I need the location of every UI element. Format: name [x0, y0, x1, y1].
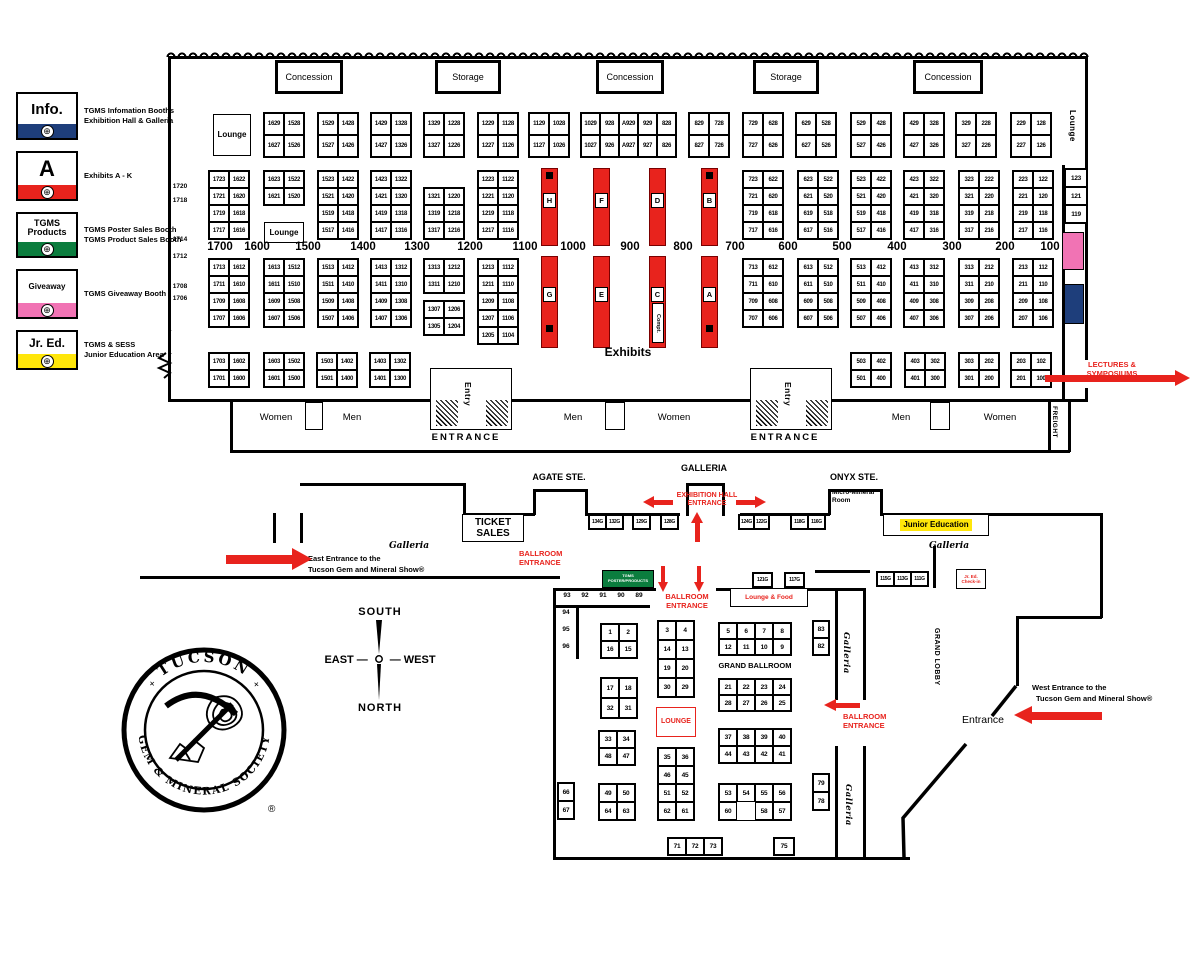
wall-segment [463, 483, 466, 515]
booth-cell: 719 [743, 205, 763, 222]
legend-chip-exhibits: A⊕ [16, 151, 78, 201]
booth-cell: 610 [763, 276, 783, 293]
booth-cell: 613 [798, 259, 818, 276]
logo-ring-bottom-text: GEM & MINERAL SOCIETY [135, 734, 272, 798]
booth-cell: 1212 [444, 259, 464, 276]
booth-cell: 403 [905, 353, 925, 370]
booth-cell: 1126 [498, 135, 518, 157]
booth-cell: 1403 [370, 353, 390, 370]
booth-cell: 1623 [264, 171, 284, 188]
booth-cell: 1311 [424, 276, 444, 293]
map-label: Galleria [929, 541, 969, 552]
exhibit-door-marker [706, 172, 713, 179]
booth-cell: 37 [719, 729, 737, 746]
booth-cell: 1308 [391, 293, 411, 310]
junior-education: Junior Education [883, 514, 989, 536]
exhibit-block-h: H [541, 168, 558, 246]
booth-cell: 617 [798, 222, 818, 239]
booth-cell: 71 [668, 838, 686, 855]
compass-needle-icon [371, 618, 387, 702]
aisle-label: 100 [1040, 241, 1059, 255]
booth-block: 1329122813271226 [423, 112, 465, 158]
booth-cell: 42 [755, 746, 773, 763]
booth-cell: 128G [661, 515, 678, 529]
booth-block: 323222321220319218317216 [958, 170, 1000, 240]
aisle-label: 1500 [295, 241, 321, 255]
booth-cell: 1519 [318, 205, 338, 222]
booth-cell: 1621 [264, 188, 284, 205]
booth-cell: 420 [871, 188, 891, 205]
exhibit-block-d: D [649, 168, 666, 246]
aisle-label: 300 [942, 241, 961, 255]
booth-cell: 1319 [424, 205, 444, 222]
booth-cell: 1027 [581, 135, 600, 157]
booth-cell: 126 [1031, 135, 1051, 157]
booth-block: 329228327226 [955, 112, 997, 158]
booth-cell: 402 [871, 353, 891, 370]
legend-chip-label: Info. [18, 94, 76, 124]
map-label-vertical: FREIGHT [1051, 406, 1058, 438]
booth-cell: 1420 [338, 188, 358, 205]
booth-cell: 1610 [229, 276, 249, 293]
booth-cell: 723 [743, 171, 763, 188]
lobby-diagonal-wall [992, 686, 1016, 716]
map-label: ENTRANCE [432, 432, 501, 443]
wall-segment [828, 489, 831, 515]
booth-cell: 1129 [529, 113, 549, 135]
booth-block: 33344847 [598, 730, 636, 766]
booth-cell: 508 [818, 293, 838, 310]
booth-cell: 82 [813, 638, 829, 655]
jr-ed-checkin-label: Jr. Ed. Check-in [961, 574, 980, 584]
booth-block: 1503140215011400 [316, 352, 358, 388]
tgms-products-booth: TGMS POSTER/PRODUCTS [602, 570, 654, 588]
booth-block: 1229112812271126 [477, 112, 519, 158]
booth-block: 713612711610709608707606 [742, 258, 784, 328]
booth-cell: 1313 [424, 259, 444, 276]
booth-block: 1529142815271426 [317, 112, 359, 158]
booth-cell: 409 [904, 293, 924, 310]
map-label: Women [658, 412, 691, 423]
booth-cell: 1407 [371, 310, 391, 327]
booth-block: 503402501400 [850, 352, 892, 388]
booth-cell: 1417 [371, 222, 391, 239]
booth-block: 303202301200 [958, 352, 1000, 388]
logo-cross-icon: + [250, 679, 262, 691]
booth-cell: 1221 [478, 188, 498, 205]
booth-cell: 63 [617, 802, 635, 820]
booth-block: 128G [660, 514, 679, 530]
booth-cell: 611 [798, 276, 818, 293]
restroom-stall [930, 402, 950, 430]
map-label: ONYX STE. [830, 472, 878, 483]
wall-segment [686, 483, 724, 486]
booth-cell: 322 [924, 171, 944, 188]
booth-cell: 302 [925, 353, 945, 370]
booth-cell: 626 [763, 135, 783, 157]
map-label: AGATE STE. [532, 472, 585, 483]
booth-cell: 1423 [371, 171, 391, 188]
booth-cell: 1510 [284, 276, 304, 293]
map-label: Women [984, 412, 1017, 423]
booth-cell: 1711 [209, 276, 229, 293]
booth-cell: 1526 [284, 135, 304, 157]
booth-cell: 327 [956, 135, 976, 157]
booth-cell: 116G [808, 515, 825, 529]
booth-block: 429328427326 [903, 112, 945, 158]
booth-cell: 709 [743, 293, 763, 310]
booth-cell: 108 [1033, 293, 1053, 310]
booth-cell: 203 [1011, 353, 1031, 370]
booth-block: 1403130214011300 [369, 352, 411, 388]
direction-arrow-right [736, 496, 766, 508]
booth-cell: 609 [798, 293, 818, 310]
booth-block: 7978 [812, 773, 830, 811]
booth-cell: 124G [739, 515, 754, 529]
entry-stairs [486, 400, 508, 426]
booth-cell: 1205 [478, 327, 498, 344]
exhibit-letter: A [703, 287, 716, 302]
booth-cell: 8 [773, 623, 791, 639]
booth-cell: 210 [979, 276, 999, 293]
booth-cell: 15 [619, 641, 637, 658]
legend-color-bar: ⊕ [18, 354, 76, 368]
booth-cell: 1322 [391, 171, 411, 188]
exhibit-block-b: B [701, 168, 718, 246]
booth-cell: 618 [763, 205, 783, 222]
booth-cell: 612 [763, 259, 783, 276]
booth-cell: 523 [851, 171, 871, 188]
legend-item-jr-ed: Jr. Ed.⊕TGMS & SESS Junior Education Are… [16, 330, 196, 370]
booth-block: 1313121213111210 [423, 258, 465, 294]
booth-cell: 1329 [424, 113, 444, 135]
booth-cell: 423 [904, 171, 924, 188]
compass-north-label: NORTH [318, 702, 442, 714]
map-label: Exhibits [605, 345, 652, 359]
booth-cell: 1511 [318, 276, 338, 293]
aisle-label: 800 [673, 241, 692, 255]
booth-cell: 209 [1013, 293, 1033, 310]
lobby-diagonal-wall [903, 744, 966, 857]
booth-cell: 316 [924, 222, 944, 239]
booth-cell: 1520 [284, 188, 304, 205]
booth-block: 17183231 [600, 677, 638, 719]
booth-cell: 318 [924, 205, 944, 222]
booth-cell: 1127 [529, 135, 549, 157]
booth-cell: 134G [589, 515, 606, 529]
booth-cell: 212 [979, 259, 999, 276]
lounge-food-label: Lounge & Food [745, 594, 793, 601]
booth-cell: 522 [818, 171, 838, 188]
legend-color-bar: ⊕ [18, 242, 76, 256]
booth-block: 1029928A9299298281027926A927927826 [580, 112, 677, 158]
booth-cell: 1300 [390, 370, 410, 387]
booth-cell: 10 [755, 639, 773, 655]
booth-cell: 300 [925, 370, 945, 387]
map-label: 90 [617, 592, 624, 600]
booth-cell: 21 [719, 679, 737, 695]
booth-cell: 112 [1033, 259, 1053, 276]
booth-cell: 111G [911, 572, 928, 586]
booth-cell: 1622 [229, 171, 249, 188]
legend-chip-label: TGMS Products [18, 214, 76, 242]
booth-cell: 506 [818, 310, 838, 327]
lounge-room-label: Lounge [218, 130, 247, 139]
booth-cell: 1223 [478, 171, 498, 188]
wall-segment [230, 450, 1070, 453]
legend-item-text: TGMS & SESS Junior Education Area [84, 340, 164, 360]
booth-cell: 1413 [371, 259, 391, 276]
booth-cell: 66 [558, 783, 574, 801]
booth-cell: 1719 [209, 205, 229, 222]
booth-cell: 1426 [338, 135, 358, 157]
booth-cell: 200 [979, 370, 999, 387]
booth-block: 629528627526 [795, 112, 837, 158]
exhibit-letter: E [595, 287, 608, 302]
booth-cell: 9 [773, 639, 791, 655]
booth-cell: 1210 [444, 276, 464, 293]
wall-segment [1016, 616, 1019, 686]
booth-cell: 421 [904, 188, 924, 205]
booth-block: 14231322142113201419131814171316 [370, 170, 412, 240]
booth-cell: 1521 [318, 188, 338, 205]
booth-cell: 36 [676, 748, 694, 766]
booth-cell: 328 [924, 113, 944, 135]
booth-cell: 1508 [284, 293, 304, 310]
aisle-label: 1600 [244, 241, 270, 255]
booth-block: 613512611510609508607506 [797, 258, 839, 328]
booth-cell: 1509 [318, 293, 338, 310]
map-label: 92 [581, 592, 588, 600]
booth-cell: 1209 [478, 293, 498, 310]
booth-cell: 229 [1011, 113, 1031, 135]
booth-cell: 1410 [338, 276, 358, 293]
booth-cell: 1411 [371, 276, 391, 293]
booth-cell: 427 [904, 135, 924, 157]
booth-cell: 220 [979, 188, 999, 205]
restroom-stall [305, 402, 323, 430]
booth-block: 53545556605857 [718, 783, 792, 821]
aisle-label: 400 [887, 241, 906, 255]
legend-item-info: Info.⊕TGMS Infomation Booths Exhibition … [16, 92, 196, 140]
booth-cell: 607 [798, 310, 818, 327]
booth-cell: 1316 [391, 222, 411, 239]
booth-cell: 29 [676, 678, 694, 697]
booth-block: 121615 [600, 623, 638, 659]
booth-cell: 2 [619, 624, 637, 641]
giveaway-booth-marker [1062, 232, 1084, 270]
booth-cell: 52 [676, 784, 694, 802]
booth-cell: 1406 [338, 310, 358, 327]
exhibit-letter: G [543, 287, 556, 302]
wall-segment [1016, 616, 1102, 619]
booth-cell: 513 [851, 259, 871, 276]
booth-cell: 1104 [498, 327, 518, 344]
booth-cell: 102 [1031, 353, 1051, 370]
booth-cell: 1401 [370, 370, 390, 387]
booth-cell: 1616 [229, 222, 249, 239]
booth-cell: 222 [979, 171, 999, 188]
booth-block: 1629152816271526 [263, 112, 305, 158]
booth-cell: 6 [737, 623, 755, 639]
booth-cell: 227 [1011, 135, 1031, 157]
booth-cell: 1512 [284, 259, 304, 276]
map-label: 96 [562, 643, 569, 651]
ballroom-lounge-label: LOUNGE [661, 718, 691, 726]
exhibit-letter: H [543, 193, 556, 208]
booth-cell: 510 [818, 276, 838, 293]
booth-block: 1129102811271026 [528, 112, 570, 158]
booth-cell: 829 [689, 113, 709, 135]
map-label: 94 [562, 609, 569, 617]
globe-icon: ⊕ [41, 304, 54, 317]
legend-item-giveaway: Giveaway⊕TGMS Giveaway Booth [16, 269, 196, 319]
booth-cell: 1523 [318, 171, 338, 188]
booth-cell: 228 [976, 113, 996, 135]
booth-cell: 507 [851, 310, 871, 327]
booth-cell: 1028 [549, 113, 569, 135]
aisle-label: 1700 [207, 241, 233, 255]
booth-cell: 226 [976, 135, 996, 157]
booth-cell: 26 [755, 695, 773, 711]
booth-cell: 329 [956, 113, 976, 135]
exhibit-letter: B [703, 193, 716, 208]
booth-cell: 426 [871, 135, 891, 157]
booth-cell: 306 [924, 310, 944, 327]
booth-cell: 628 [763, 113, 783, 135]
map-label-vertical: Galleria [843, 784, 853, 826]
booth-cell: 27 [737, 695, 755, 711]
booth-cell: 519 [851, 205, 871, 222]
booth-cell: 1629 [264, 113, 284, 135]
booth-cell: 1327 [424, 135, 444, 157]
booth-cell: 1207 [478, 310, 498, 327]
booth-cell: 623 [798, 171, 818, 188]
wall-segment [1068, 402, 1071, 452]
aisle-label: 700 [725, 241, 744, 255]
booth-cell: 1500 [284, 370, 304, 387]
booth-cell: 308 [924, 293, 944, 310]
booth-cell: 208 [979, 293, 999, 310]
wall-segment [273, 513, 276, 543]
map-label: 91 [599, 592, 606, 600]
booth-cell: 410 [871, 276, 891, 293]
booth-cell: 1220 [444, 188, 464, 205]
booth-cell: 1713 [209, 259, 229, 276]
booth-cell: 3 [658, 621, 676, 640]
restroom-stall [605, 402, 625, 430]
map-label: BALLROOM ENTRANCE [519, 549, 562, 567]
booth-cell: 1606 [229, 310, 249, 327]
booth-cell: 44 [719, 746, 737, 763]
booth-block: 1703160217011600 [208, 352, 250, 388]
booth-cell: 1026 [549, 135, 569, 157]
booth-cell: 120 [1033, 188, 1053, 205]
aisle-label: 1200 [457, 241, 483, 255]
booth-block: 15131412151114101509140815071406 [317, 258, 359, 328]
compass-south-label: SOUTH [318, 606, 442, 618]
booth-cell: 62 [658, 802, 676, 820]
booth-cell: 417 [904, 222, 924, 239]
booth-cell: 622 [763, 171, 783, 188]
booth-cell: 512 [818, 259, 838, 276]
wall-segment [1100, 513, 1103, 618]
booth-cell: 55 [755, 784, 773, 802]
booth-cell: 46 [658, 766, 676, 784]
direction-arrow-left [643, 496, 673, 508]
exhibit-door-marker [706, 325, 713, 332]
map-label: Tucson Gem and Mineral Show® [1036, 694, 1152, 703]
wall-segment [866, 857, 910, 860]
booth-cell: 1428 [338, 113, 358, 135]
exhibit-block-e: E [593, 256, 610, 348]
booth-cell: 1305 [424, 318, 444, 335]
map-label: Women [260, 412, 293, 423]
booth-block: 75 [773, 837, 795, 856]
booth-block: 124G122G [738, 514, 770, 530]
legend-chip-giveaway: Giveaway⊕ [16, 269, 78, 319]
booth-cell: 311 [959, 276, 979, 293]
booth-block: 49506463 [598, 783, 636, 821]
map-label: Micro-Mineral Room [832, 489, 874, 505]
aisle-label: 600 [778, 241, 797, 255]
booth-cell: 221 [1013, 188, 1033, 205]
facility-concession: Concession [913, 60, 983, 94]
booth-cell: 217 [1013, 222, 1033, 239]
booth-cell: 411 [904, 276, 924, 293]
facility-storage: Storage [435, 60, 501, 94]
direction-arrow-right [226, 548, 312, 570]
info-booth-marker [1064, 284, 1084, 324]
wall-segment [815, 570, 870, 573]
booth-block: 3536464551526261 [657, 747, 695, 821]
booth-cell: 826 [657, 135, 676, 157]
booth-cell: 527 [851, 135, 871, 157]
booth-cell: 1707 [209, 310, 229, 327]
booth-cell: 1 [601, 624, 619, 641]
booth-cell: 12 [719, 639, 737, 655]
booth-cell: 50 [617, 784, 635, 802]
booth-cell: 620 [763, 188, 783, 205]
booth-block: 8382 [812, 620, 830, 656]
booth-cell: 1627 [264, 135, 284, 157]
map-label: Tucson Gem and Mineral Show® [308, 565, 424, 574]
map-label: Men [892, 412, 910, 423]
booth-cell: 106 [1033, 310, 1053, 327]
booth-cell: 43 [737, 746, 755, 763]
booth-cell: 53 [719, 784, 737, 802]
exhibit-block-a: A [701, 256, 718, 348]
booth-cell: 1108 [498, 293, 518, 310]
booth-cell: 1717 [209, 222, 229, 239]
wall-segment [300, 483, 464, 486]
booth-cell: 206 [979, 310, 999, 327]
exhibit-block-c: CCompt. [649, 256, 666, 348]
exhibit-block-f: F [593, 168, 610, 246]
booth-cell: 41 [773, 746, 791, 763]
booth-cell: 1709 [209, 293, 229, 310]
booth-cell: 721 [743, 188, 763, 205]
booth-block: 513412511410509408507406 [850, 258, 892, 328]
booth-cell: 1612 [229, 259, 249, 276]
booth-cell: 1527 [318, 135, 338, 157]
booth-cell: 929 [638, 113, 657, 135]
booth-cell: 28 [719, 695, 737, 711]
booth-cell: 521 [851, 188, 871, 205]
booth-cell: 1419 [371, 205, 391, 222]
booth-cell: 1402 [337, 353, 357, 370]
booth-cell: 1312 [391, 259, 411, 276]
